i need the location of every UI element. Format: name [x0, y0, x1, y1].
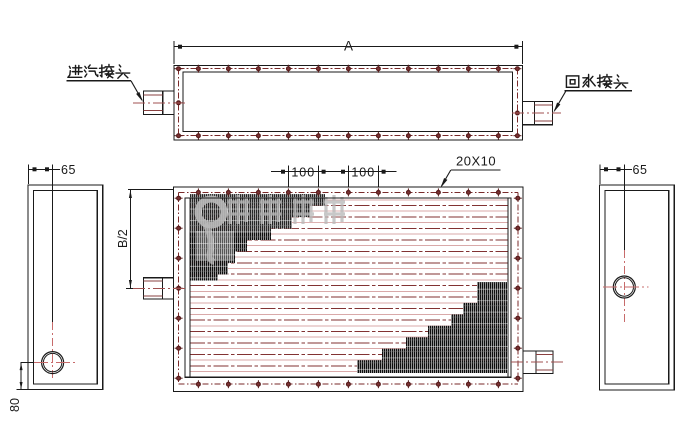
svg-text:65: 65	[61, 163, 76, 177]
svg-text:65: 65	[633, 163, 648, 177]
svg-text:80: 80	[8, 398, 22, 412]
svg-text:B/2: B/2	[116, 229, 130, 248]
svg-text:100: 100	[351, 165, 375, 179]
svg-text:20X10: 20X10	[456, 154, 496, 169]
svg-text:A: A	[344, 39, 353, 54]
svg-text:100: 100	[291, 165, 315, 179]
